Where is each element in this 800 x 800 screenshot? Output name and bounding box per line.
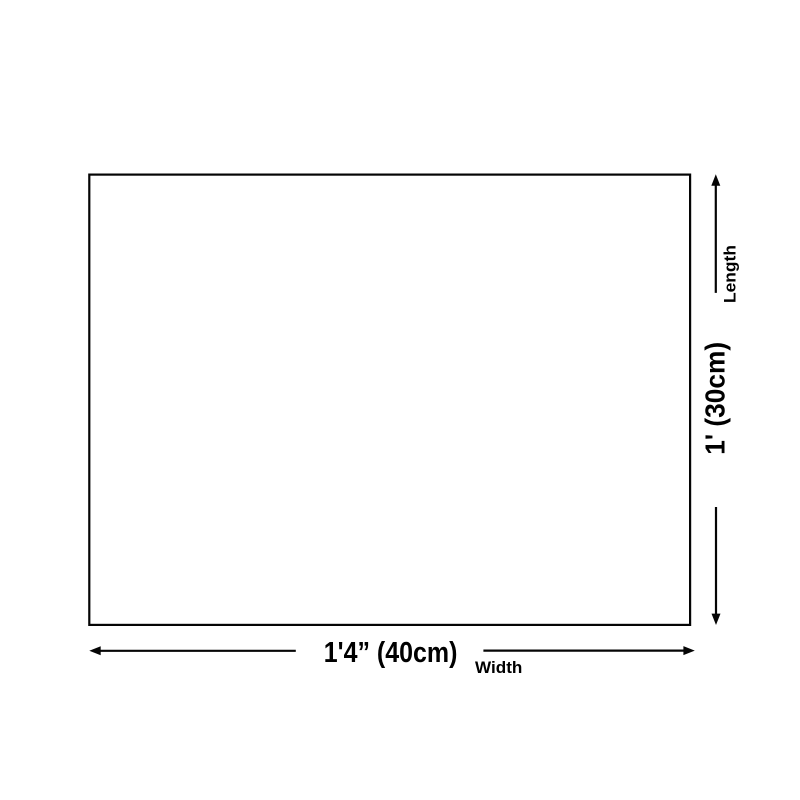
svg-text:1' (30cm): 1' (30cm) — [700, 342, 731, 455]
svg-text:Width: Width — [475, 659, 522, 677]
svg-text:Length: Length — [722, 245, 740, 303]
svg-text:1'4” (40cm): 1'4” (40cm) — [324, 637, 458, 669]
